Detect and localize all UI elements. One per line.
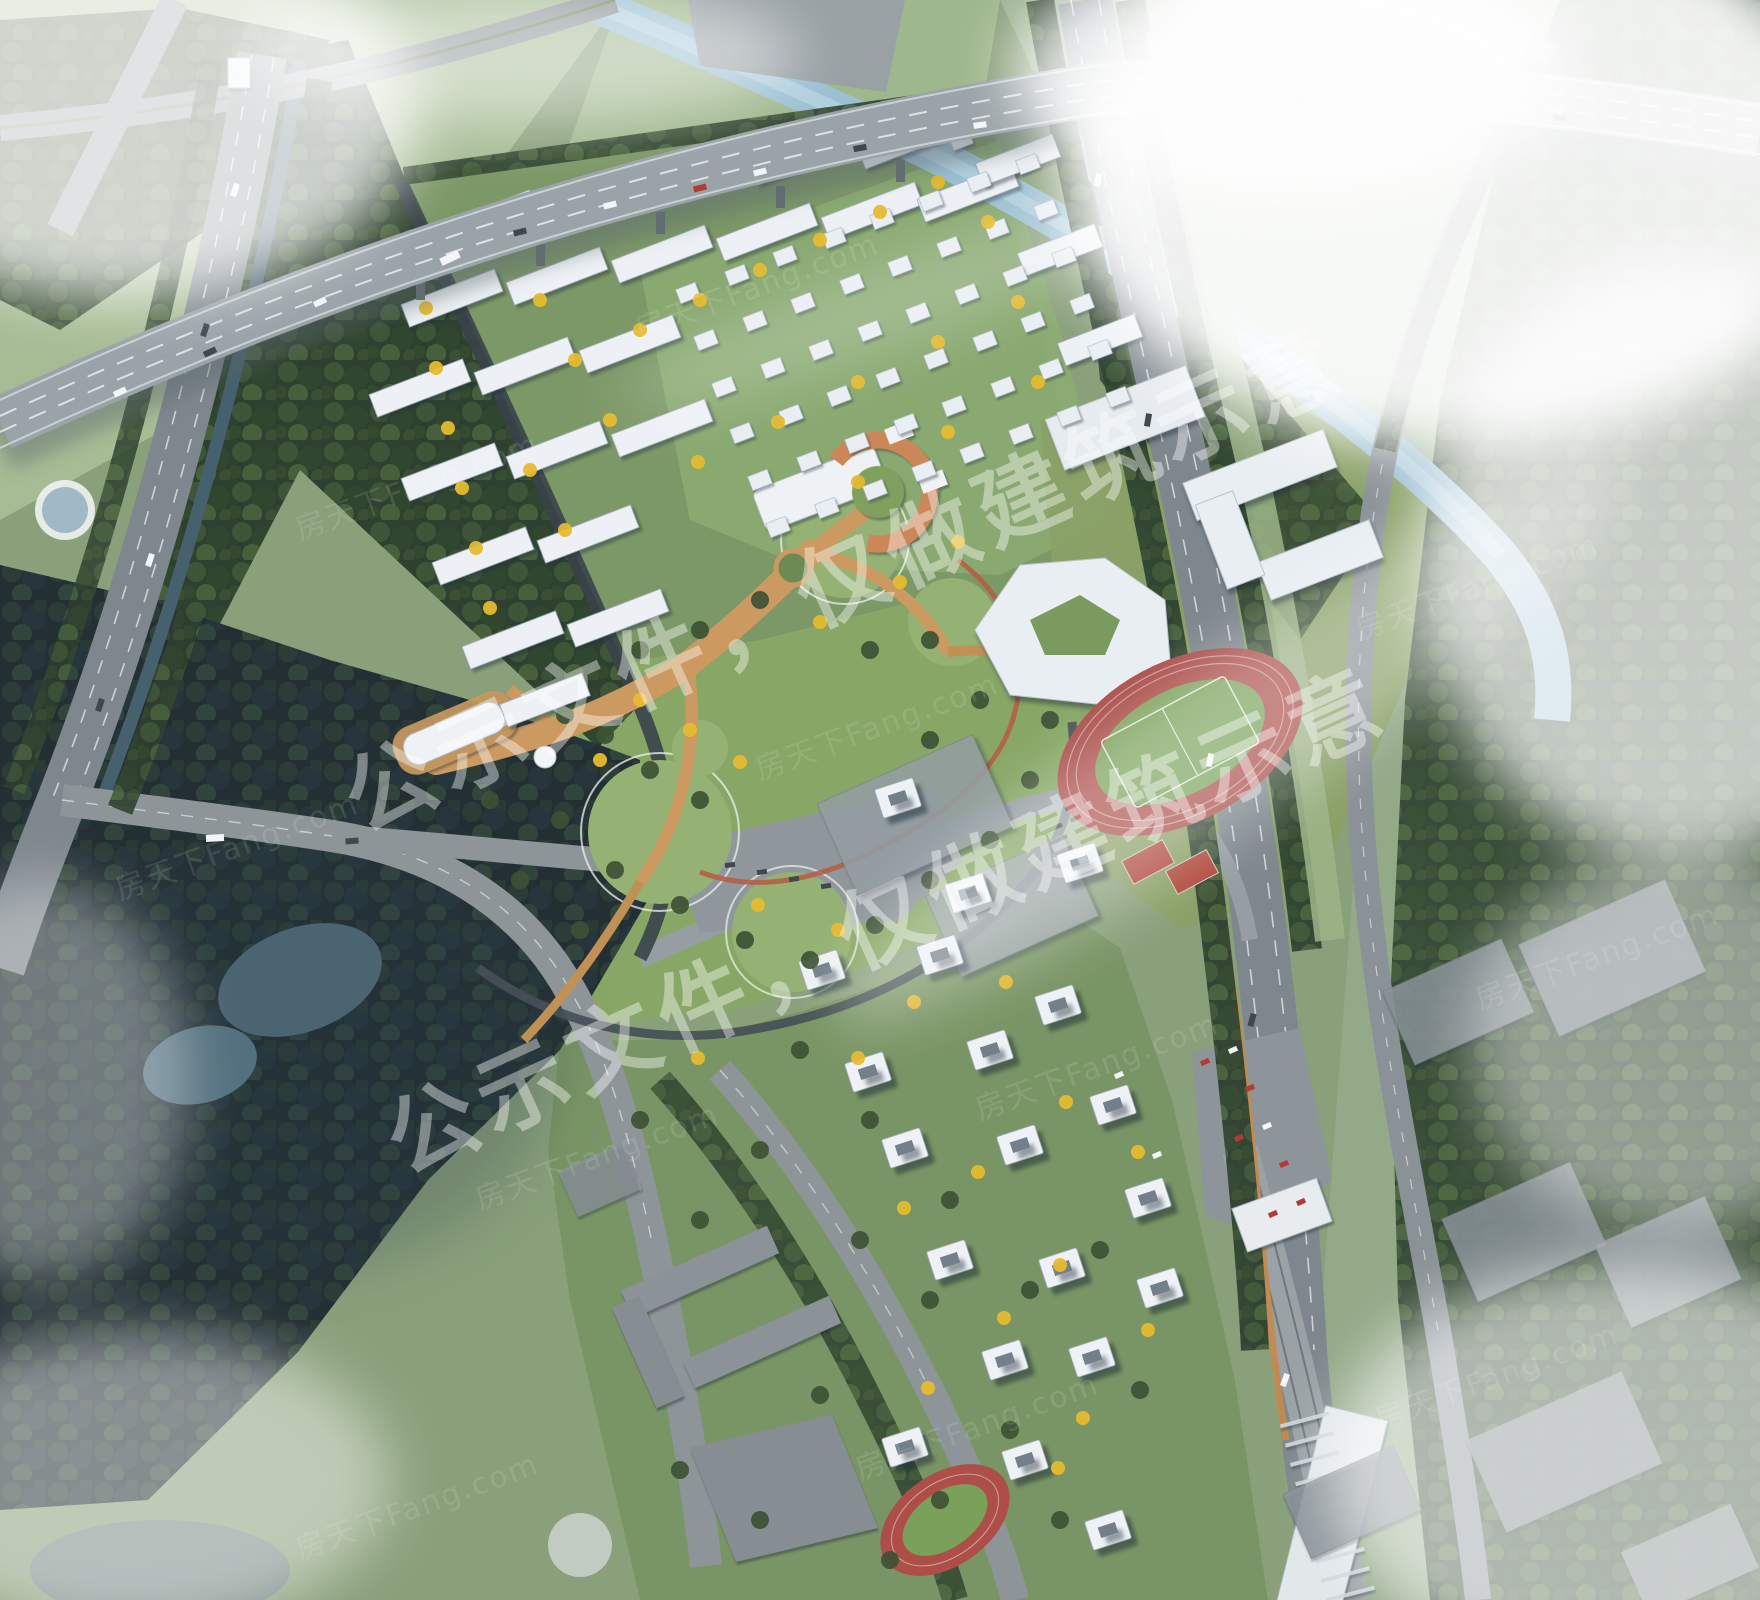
ginkgo-tree: [941, 425, 955, 439]
ginkgo-tree: [971, 1165, 985, 1179]
ginkgo-tree: [873, 205, 887, 219]
round-pond: [42, 487, 88, 533]
tree: [1131, 1381, 1149, 1399]
tree: [551, 811, 569, 829]
tree: [941, 1191, 959, 1209]
tree: [691, 1211, 709, 1229]
ginkgo-tree: [1076, 1411, 1090, 1425]
tree: [606, 861, 624, 879]
ginkgo-tree: [691, 455, 705, 469]
tree: [861, 641, 879, 659]
ginkgo-tree: [1051, 1461, 1065, 1475]
tree: [791, 1041, 809, 1059]
ginkgo-tree: [771, 415, 785, 429]
viaduct-pier: [656, 212, 665, 234]
ginkgo-tree: [558, 523, 572, 537]
ginkgo-tree: [751, 898, 765, 912]
aerial-rendering-stage: 公示文件，仅做建筑示意公示文件，仅做建筑示意房天下Fang.com房天下Fang…: [0, 0, 1760, 1600]
lawn-circle: [588, 760, 732, 904]
tree: [931, 1491, 949, 1509]
tree: [921, 631, 939, 649]
tree: [881, 1551, 899, 1569]
ginkgo-tree: [851, 1051, 865, 1065]
ginkgo-tree: [429, 361, 443, 375]
ginkgo-tree: [897, 1201, 911, 1215]
tree: [861, 1111, 879, 1129]
ginkgo-tree: [1031, 375, 1045, 389]
ginkgo-tree: [533, 293, 547, 307]
ginkgo-tree: [593, 753, 607, 767]
tree: [921, 1291, 939, 1309]
ginkgo-tree: [1131, 1145, 1145, 1159]
ginkgo-tree: [931, 175, 945, 189]
tree: [851, 1231, 869, 1249]
tree: [1041, 711, 1059, 729]
tree: [811, 1386, 829, 1404]
tree: [641, 761, 659, 779]
ginkgo-tree: [931, 335, 945, 349]
tree: [671, 896, 689, 914]
ginkgo-tree: [483, 601, 497, 615]
ginkgo-tree: [851, 475, 865, 489]
ginkgo-tree: [603, 413, 617, 427]
tree: [511, 871, 529, 889]
ginkgo-tree: [1141, 1323, 1155, 1337]
viaduct-pier: [776, 186, 785, 208]
ginkgo-tree: [1053, 1258, 1067, 1272]
tree: [921, 731, 939, 749]
ginkgo-tree: [997, 1311, 1011, 1325]
tree: [1021, 1281, 1039, 1299]
ginkgo-tree: [999, 975, 1013, 989]
viaduct-pier: [896, 160, 905, 182]
ginkgo-tree: [683, 723, 697, 737]
ginkgo-tree: [568, 353, 582, 367]
tree: [751, 1141, 769, 1159]
ginkgo-tree: [851, 375, 865, 389]
tree: [571, 921, 589, 939]
viaduct-pier: [536, 244, 545, 266]
tree: [1091, 1241, 1109, 1259]
lawn-circle: [672, 720, 728, 776]
tree: [751, 1511, 769, 1529]
ginkgo-tree: [921, 1381, 935, 1395]
park-plaza-circle: [548, 1513, 612, 1577]
ginkgo-tree: [469, 541, 483, 555]
car: [345, 838, 358, 845]
tree: [1051, 1511, 1069, 1529]
tree: [691, 791, 709, 809]
tree: [671, 1461, 689, 1479]
ginkgo-tree: [441, 421, 455, 435]
ginkgo-tree: [733, 755, 747, 769]
aerial-masterplan-rendering: 公示文件，仅做建筑示意公示文件，仅做建筑示意房天下Fang.com房天下Fang…: [0, 0, 1760, 1600]
